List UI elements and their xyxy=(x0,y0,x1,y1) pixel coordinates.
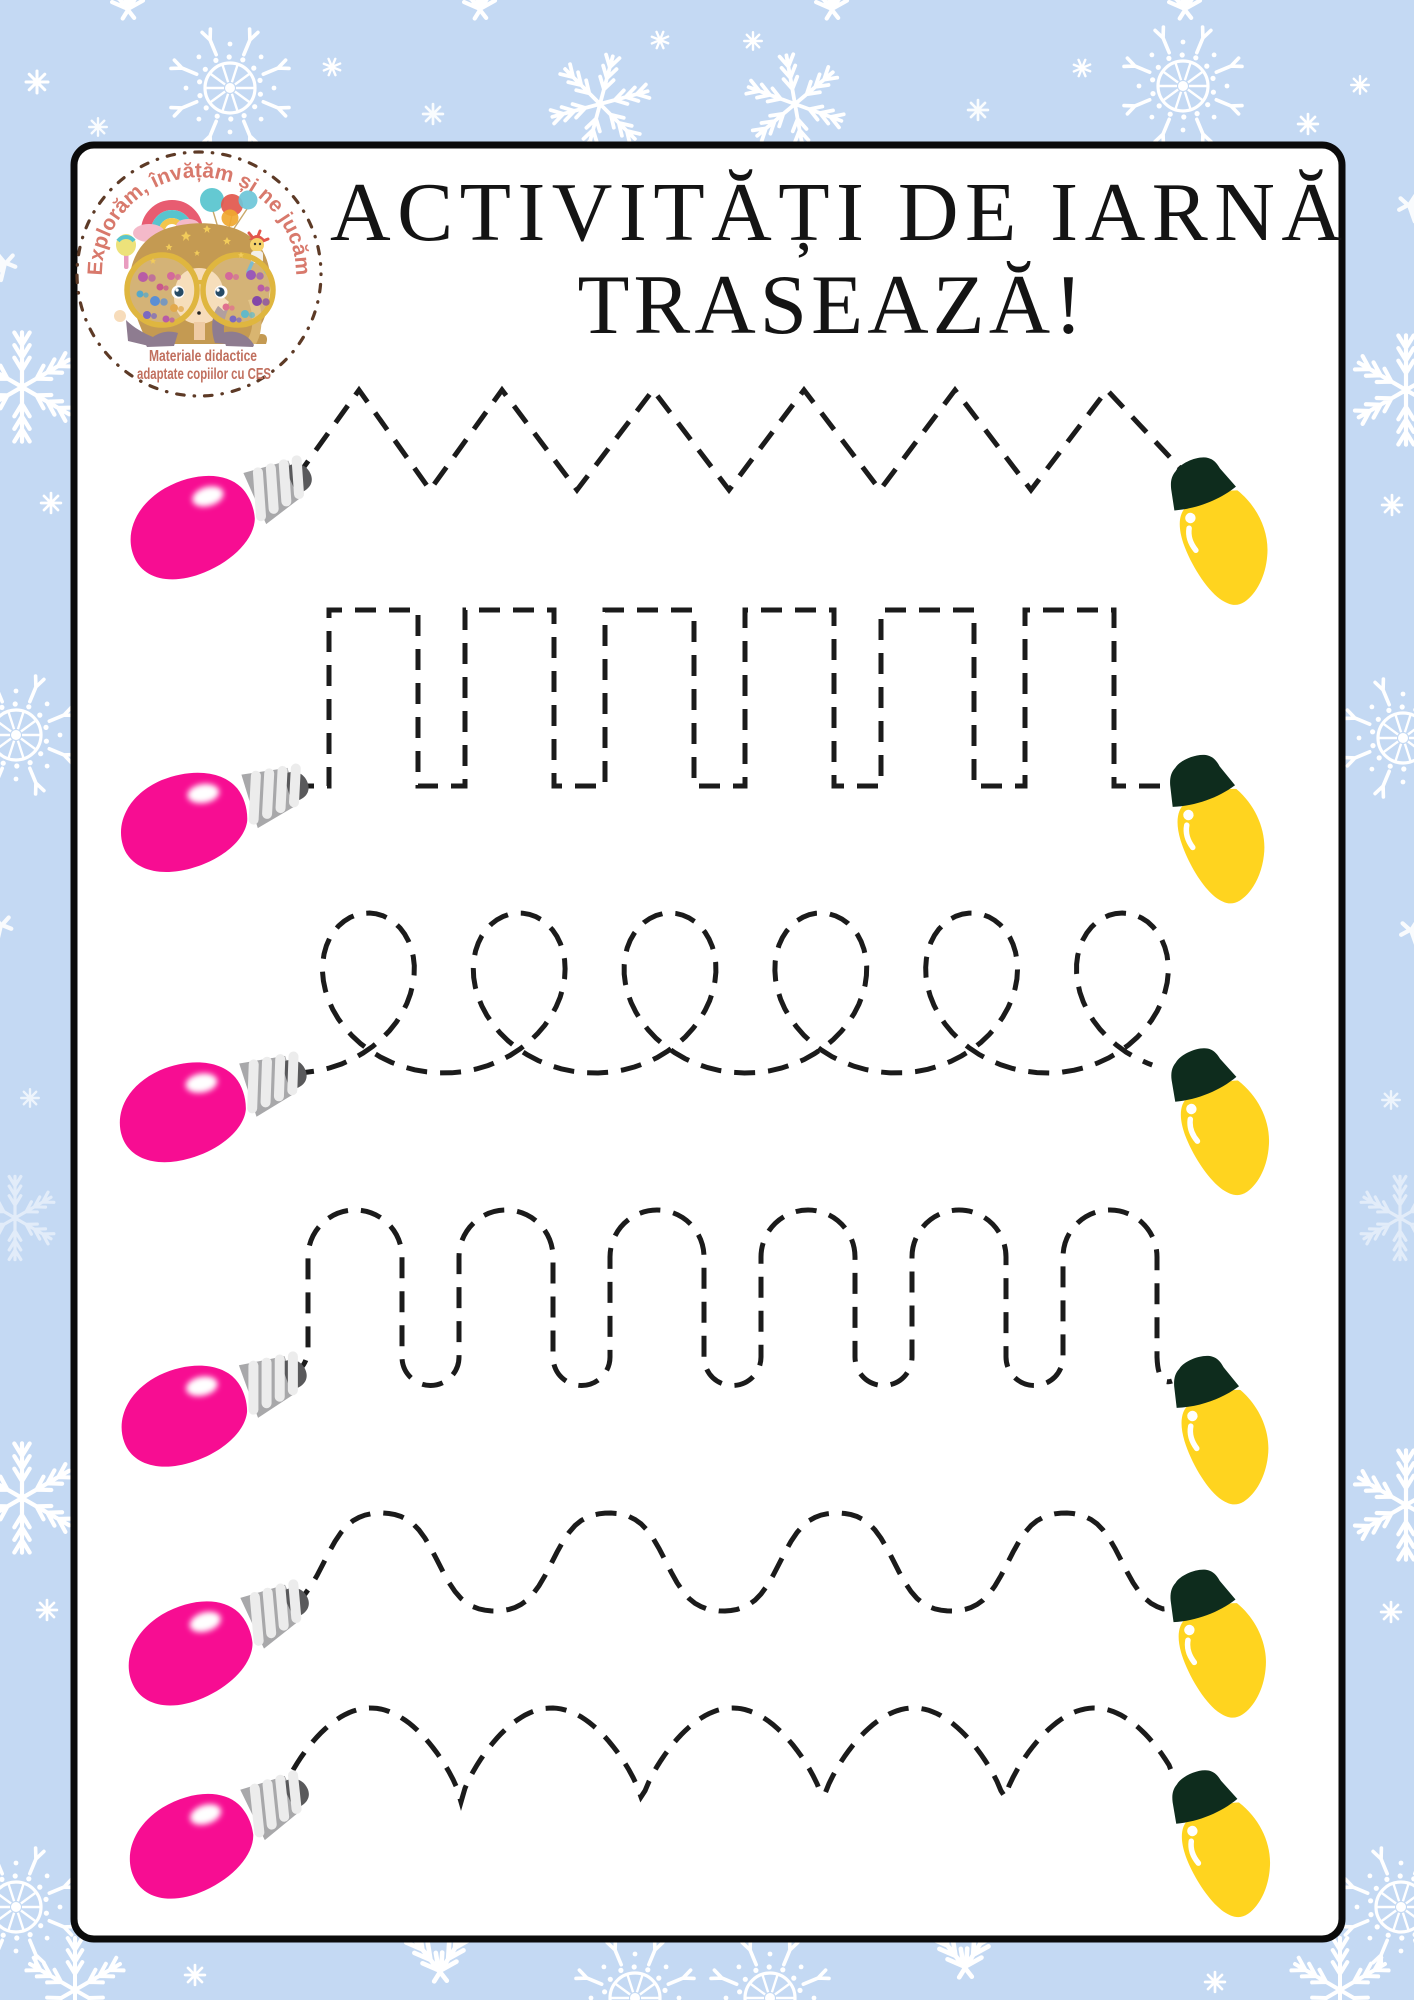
svg-text:ACTIVITĂȚI DE IARNĂ: ACTIVITĂȚI DE IARNĂ xyxy=(330,166,1342,259)
svg-text:TRASEAZĂ!: TRASEAZĂ! xyxy=(578,258,1083,352)
svg-text:Materiale didactice: Materiale didactice xyxy=(149,348,257,365)
svg-text:adaptate copiilor cu CES: adaptate copiilor cu CES xyxy=(137,366,271,383)
